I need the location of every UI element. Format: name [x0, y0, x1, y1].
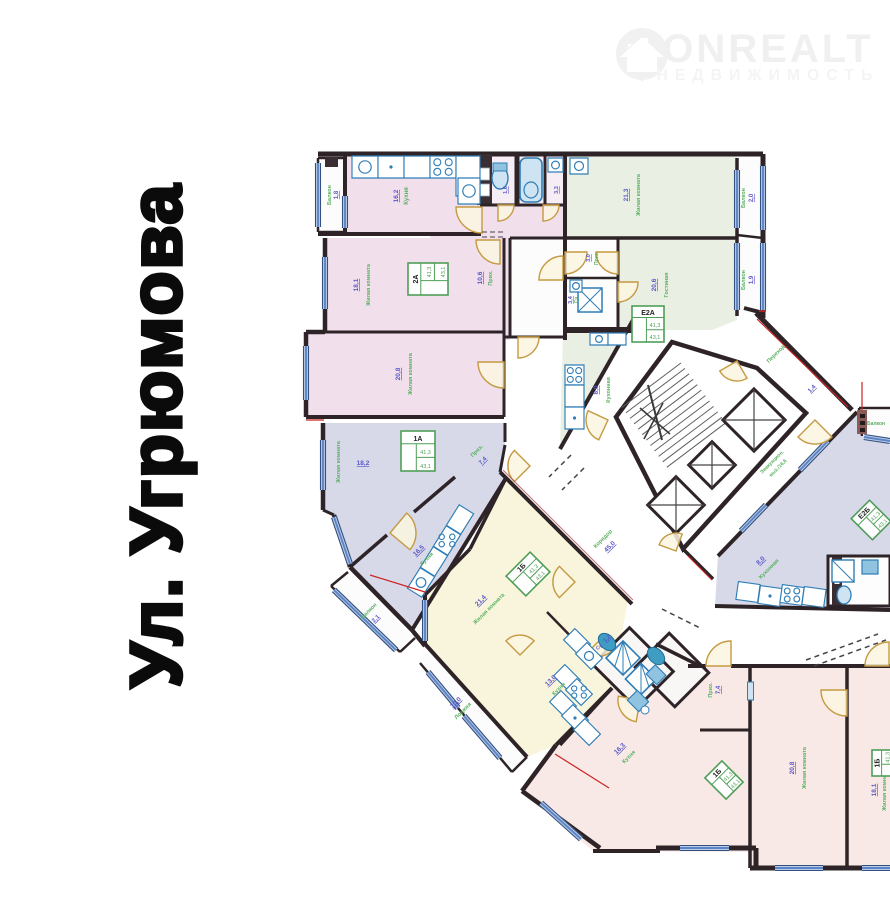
svg-text:Гостиная: Гостиная — [664, 273, 670, 298]
svg-text:41,3: 41,3 — [885, 752, 890, 763]
svg-text:Жилая комната: Жилая комната — [366, 263, 372, 307]
svg-text:1Б: 1Б — [875, 759, 882, 768]
svg-text:Жилая комната: Жилая комната — [802, 746, 808, 790]
svg-text:2,0: 2,0 — [749, 193, 755, 202]
svg-text:43,1: 43,1 — [441, 267, 447, 278]
svg-text:Прих.: Прих. — [488, 270, 494, 286]
svg-text:3,3: 3,3 — [554, 186, 560, 194]
svg-text:18,1: 18,1 — [353, 278, 360, 291]
svg-text:Жилая комната: Жилая комната — [636, 173, 642, 217]
svg-text:3,4: 3,4 — [568, 295, 574, 304]
svg-text:НЕДВИЖИМОСТЬ: НЕДВИЖИМОСТЬ — [657, 67, 880, 84]
svg-text:3,0: 3,0 — [586, 254, 592, 262]
svg-text:21,3: 21,3 — [623, 188, 630, 201]
svg-text:41,3: 41,3 — [427, 267, 433, 278]
svg-text:18,2: 18,2 — [357, 460, 370, 467]
svg-text:Кухонная: Кухонная — [606, 377, 612, 403]
svg-text:Е2А: Е2А — [641, 310, 655, 317]
svg-text:43,1: 43,1 — [650, 335, 661, 341]
svg-text:Ул. Угрюмова: Ул. Угрюмова — [117, 182, 197, 687]
svg-text:Су: Су — [574, 297, 580, 304]
svg-text:1,6: 1,6 — [503, 186, 509, 194]
svg-text:2А: 2А — [413, 275, 420, 284]
svg-text:Балкон: Балкон — [327, 185, 333, 205]
svg-text:Балкон: Балкон — [741, 188, 747, 208]
svg-text:1А: 1А — [414, 436, 423, 443]
svg-text:Жилая комната: Жилая комната — [408, 352, 414, 396]
svg-text:41,3: 41,3 — [650, 323, 661, 329]
svg-text:1,8: 1,8 — [334, 190, 340, 199]
svg-text:20,8: 20,8 — [395, 367, 402, 380]
svg-text:41,3: 41,3 — [420, 450, 431, 456]
svg-text:Жилая комната: Жилая комната — [336, 440, 342, 484]
svg-text:Балкон: Балкон — [867, 421, 885, 427]
svg-text:18,1: 18,1 — [871, 783, 878, 796]
svg-text:1,9: 1,9 — [749, 275, 755, 284]
svg-text:20,6: 20,6 — [651, 278, 658, 291]
svg-text:7,4: 7,4 — [716, 685, 722, 694]
svg-text:8,0: 8,0 — [593, 385, 600, 394]
svg-text:ONREALT: ONREALT — [662, 27, 873, 71]
svg-text:Прих.: Прих. — [708, 682, 714, 698]
svg-text:Кухня: Кухня — [404, 187, 410, 205]
svg-text:10,6: 10,6 — [477, 271, 484, 284]
svg-text:16,2: 16,2 — [393, 189, 400, 202]
svg-text:Прих.: Прих. — [594, 250, 600, 265]
svg-text:20,8: 20,8 — [789, 761, 796, 774]
svg-text:Балкон: Балкон — [741, 270, 747, 290]
svg-text:43,1: 43,1 — [420, 464, 431, 470]
